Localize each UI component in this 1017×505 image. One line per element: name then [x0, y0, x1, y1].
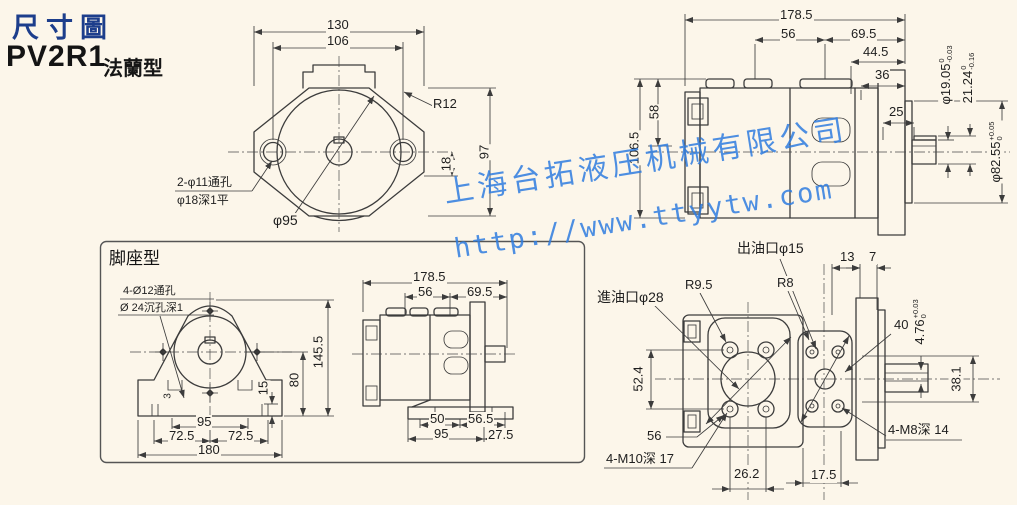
- note-foot-holes-2: Ø 24沉孔深1: [119, 302, 184, 314]
- dim-145-5: 145.5: [311, 335, 326, 370]
- dim-97: 97: [477, 144, 492, 160]
- dim-80: 80: [287, 372, 302, 388]
- key-width-value: 4.76: [913, 319, 928, 344]
- dim-106-5: 106.5: [627, 131, 642, 166]
- outlet-port-label: 出油口φ15: [736, 241, 805, 257]
- dim-56-port: 56: [646, 429, 662, 444]
- note-inlet-bolts: 4-M10深 17: [605, 452, 675, 467]
- dim-26-2: 26.2: [733, 467, 760, 482]
- dim-25: 25: [888, 105, 904, 120]
- dim-50: 50: [429, 412, 445, 427]
- dim-130: 130: [326, 18, 350, 33]
- dim-r9-5: R9.5: [684, 278, 713, 293]
- dim-27-5: 27.5: [487, 428, 514, 443]
- dim-178-5-foot: 178.5: [412, 270, 447, 285]
- tolerance-lower: 0: [996, 122, 1004, 141]
- dim-15: 15: [256, 380, 271, 396]
- note-foot-holes-1: 4-Ø12通孔: [122, 285, 177, 297]
- dim-dia-95: φ95: [272, 213, 299, 229]
- dim-72-5-left: 72.5: [168, 429, 195, 444]
- spigot-dia-tolerance: +0.05 0: [988, 122, 1004, 141]
- dim-72-5-right: 72.5: [227, 429, 254, 444]
- dim-36: 36: [874, 68, 890, 83]
- dim-52-4: 52.4: [631, 365, 646, 392]
- shaft-dia-value: φ19.05: [939, 64, 954, 105]
- shaft-dia-tolerance: 0 -0.03: [938, 45, 954, 62]
- dim-180: 180: [197, 443, 221, 458]
- key-width-tolerance: +0.03 0: [912, 299, 928, 318]
- foot-mount-section-title: 脚座型: [107, 244, 162, 269]
- tolerance-lower: -0.16: [968, 53, 976, 70]
- dimension-diagram-page: 尺寸圖 PV2R1 法蘭型 上海台拓液压机械有限公司 http://www.tt…: [0, 0, 1017, 505]
- dim-56-foot: 56: [417, 285, 433, 300]
- dim-178-5: 178.5: [779, 8, 814, 23]
- tolerance-lower: -0.03: [946, 45, 954, 62]
- dim-69-5-foot: 69.5: [466, 285, 493, 300]
- key-height-tolerance: 0 -0.16: [960, 53, 976, 70]
- dim-56-5: 56.5: [467, 412, 494, 427]
- model-name: PV2R1: [6, 40, 106, 74]
- variant-label: 法蘭型: [103, 52, 163, 81]
- dim-17-5: 17.5: [810, 468, 837, 483]
- dim-3: 3: [163, 392, 174, 400]
- dim-18: 18: [439, 156, 454, 172]
- tolerance-lower: 0: [920, 299, 928, 318]
- dim-shaft-dia: φ19.05 0 -0.03: [938, 44, 954, 105]
- dim-106: 106: [326, 34, 350, 49]
- dim-key-height: 21.24 0 -0.16: [960, 52, 976, 105]
- dim-spigot-dia: φ82.55 +0.05 0: [988, 121, 1004, 184]
- spigot-dia-value: φ82.55: [989, 142, 1004, 183]
- foot-front-view: [118, 292, 334, 458]
- dim-58: 58: [647, 104, 662, 120]
- dim-7: 7: [868, 250, 877, 265]
- dim-13: 13: [839, 250, 855, 265]
- dim-69-5: 69.5: [850, 27, 877, 42]
- dim-r12: R12: [432, 97, 458, 112]
- inlet-port-label: 進油口φ28: [596, 290, 665, 306]
- dim-38-1: 38.1: [949, 365, 964, 392]
- dim-40: 40: [893, 318, 909, 333]
- dim-56: 56: [780, 27, 796, 42]
- note-mount-holes-1: 2-φ11通孔: [176, 176, 233, 189]
- key-height-value: 21.24: [961, 71, 976, 104]
- note-mount-holes-2: φ18深1平: [176, 194, 230, 207]
- dim-95-foot: 95: [433, 427, 449, 442]
- dim-44-5: 44.5: [862, 45, 889, 60]
- dim-95: 95: [196, 415, 212, 430]
- dim-r8: R8: [776, 276, 795, 291]
- dim-key-width: 4.76 +0.03 0: [912, 298, 928, 345]
- note-outlet-bolts: 4-M8深 14: [887, 423, 950, 438]
